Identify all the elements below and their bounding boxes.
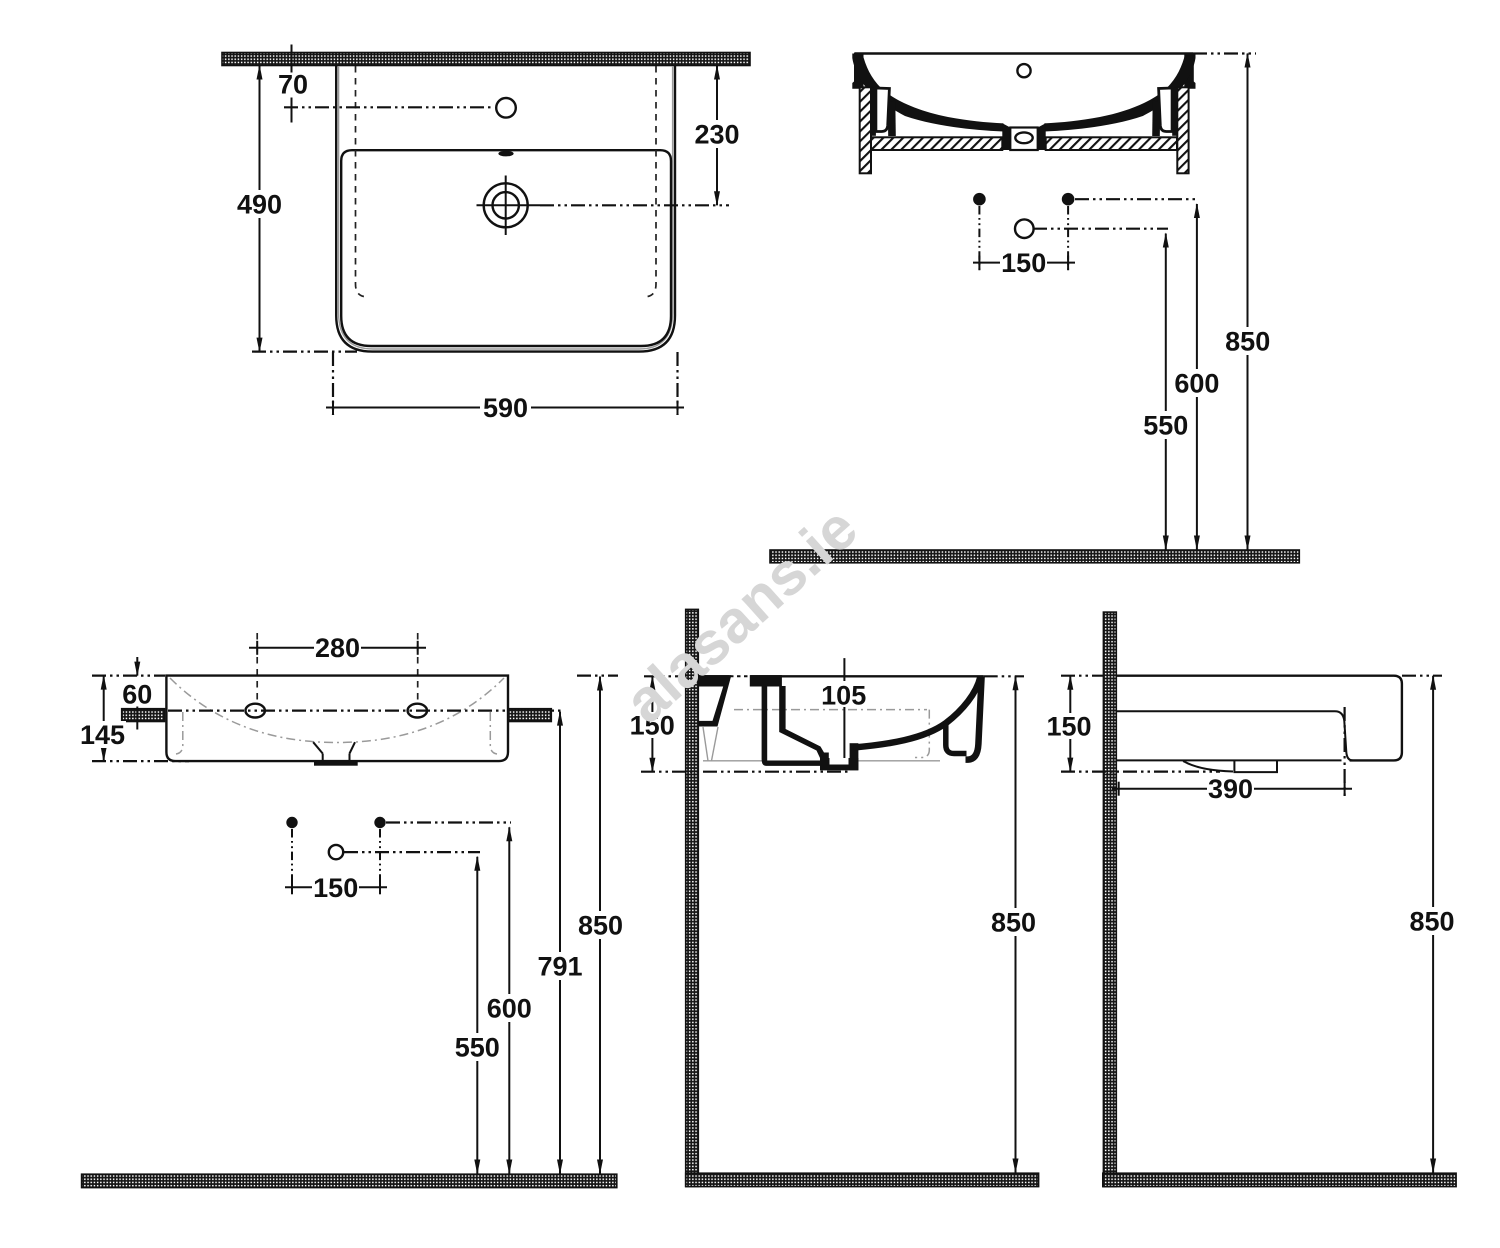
svg-text:850: 850 bbox=[1225, 327, 1270, 357]
svg-text:590: 590 bbox=[483, 393, 528, 423]
svg-text:105: 105 bbox=[821, 681, 866, 711]
svg-text:230: 230 bbox=[694, 120, 739, 150]
svg-text:600: 600 bbox=[1174, 369, 1219, 399]
svg-text:490: 490 bbox=[237, 190, 282, 220]
svg-text:150: 150 bbox=[1001, 248, 1046, 278]
svg-text:150: 150 bbox=[313, 873, 358, 903]
svg-text:550: 550 bbox=[455, 1033, 500, 1063]
svg-text:850: 850 bbox=[991, 908, 1036, 938]
svg-text:70: 70 bbox=[278, 70, 308, 100]
svg-text:145: 145 bbox=[80, 720, 125, 750]
svg-text:791: 791 bbox=[537, 952, 582, 982]
svg-text:850: 850 bbox=[578, 911, 623, 941]
svg-text:850: 850 bbox=[1409, 907, 1454, 937]
svg-text:60: 60 bbox=[122, 679, 152, 709]
svg-text:550: 550 bbox=[1143, 411, 1188, 441]
svg-text:390: 390 bbox=[1208, 774, 1253, 804]
svg-text:600: 600 bbox=[487, 994, 532, 1024]
svg-text:280: 280 bbox=[315, 633, 360, 663]
svg-text:150: 150 bbox=[1046, 712, 1091, 742]
